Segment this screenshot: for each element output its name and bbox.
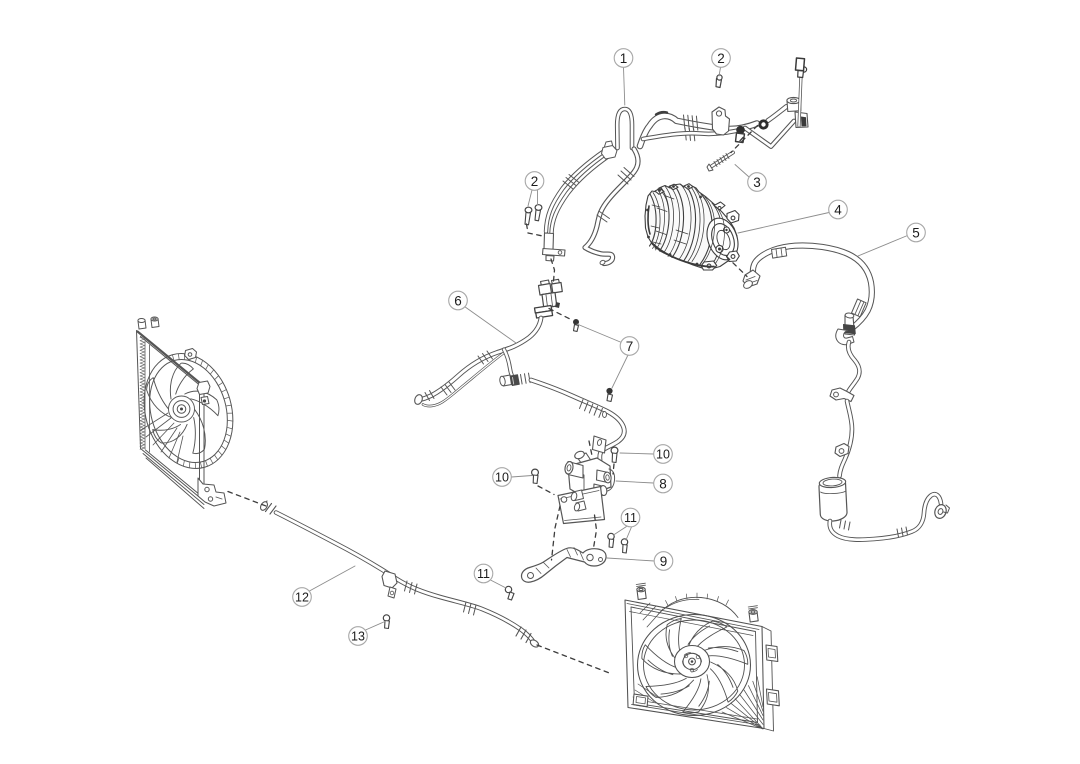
svg-text:11: 11	[624, 511, 637, 525]
svg-text:11: 11	[477, 567, 490, 581]
svg-text:3: 3	[753, 175, 761, 190]
svg-text:9: 9	[660, 554, 668, 569]
svg-text:7: 7	[626, 339, 634, 354]
svg-text:12: 12	[295, 591, 309, 605]
svg-text:5: 5	[912, 226, 920, 241]
svg-text:4: 4	[834, 203, 842, 218]
svg-text:1: 1	[620, 51, 628, 66]
svg-text:10: 10	[656, 448, 670, 462]
svg-text:6: 6	[454, 294, 462, 309]
svg-text:2: 2	[531, 174, 539, 189]
svg-text:10: 10	[495, 471, 509, 485]
svg-text:8: 8	[659, 477, 667, 492]
svg-text:2: 2	[717, 51, 725, 66]
svg-text:13: 13	[351, 630, 365, 644]
